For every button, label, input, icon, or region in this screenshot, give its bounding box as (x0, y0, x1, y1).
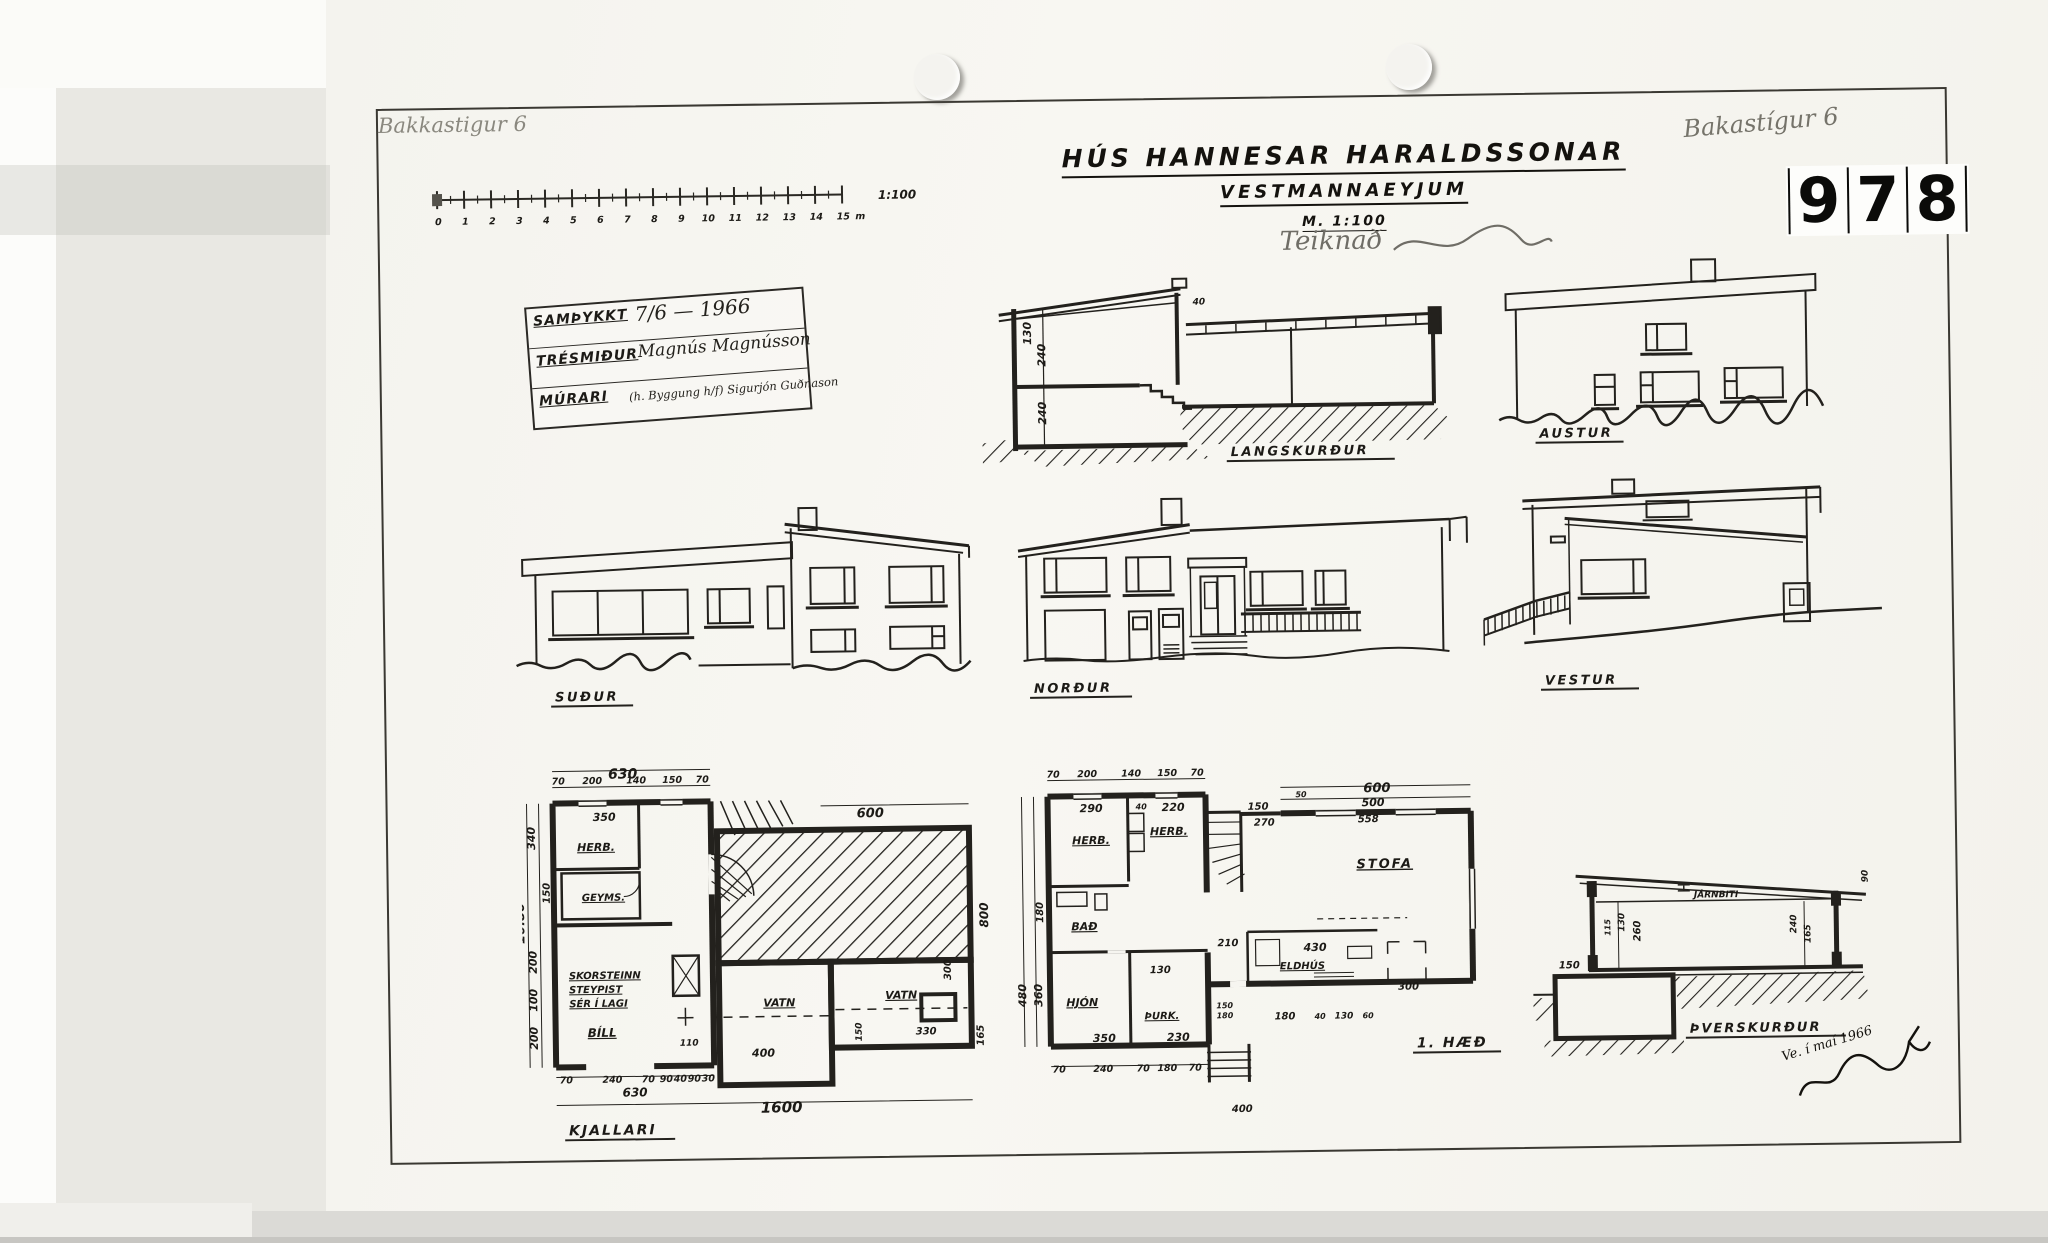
svg-text:480: 480 (1016, 984, 1029, 1008)
room-herb2: HERB. (1150, 825, 1188, 839)
room-stofa: STOFA (1356, 857, 1413, 873)
svg-text:2: 2 (489, 216, 496, 227)
approval-signature: (h. Byggung h/f) Sigurjón Guðnason (629, 374, 839, 404)
scan-corner (0, 0, 326, 88)
svg-text:430: 430 (1302, 941, 1326, 954)
elevation-nordur-drawing: NORÐUR (1011, 483, 1474, 704)
stray-dimension: 400 (1232, 1104, 1253, 1115)
svg-text:40: 40 (673, 1074, 688, 1085)
svg-text:40: 40 (1135, 802, 1148, 811)
scan-bottom-line (0, 1237, 2048, 1243)
svg-text:240: 240 (1035, 343, 1048, 366)
svg-text:500: 500 (1361, 796, 1384, 809)
svg-text:350: 350 (593, 811, 616, 824)
svg-text:165: 165 (976, 1025, 987, 1046)
svg-text:180: 180 (1035, 902, 1046, 923)
svg-text:70: 70 (642, 1074, 656, 1085)
scale-bar: 0 1 2 3 4 5 6 7 8 9 10 11 12 13 14 15 m … (422, 158, 983, 246)
plan-haed1-label: 1. HÆÐ (1417, 1035, 1488, 1052)
approval-label: SAMÞYKKT (533, 307, 629, 330)
beam-label: JÁRNBITI (1692, 888, 1739, 901)
svg-text:150: 150 (542, 883, 553, 904)
approval-label: MÚRARI (539, 389, 609, 410)
svg-text:165: 165 (1803, 924, 1813, 943)
punch-hole-left (914, 54, 960, 100)
elevation-vestur-label: VESTUR (1545, 673, 1618, 689)
note-skorsteinn: SKORSTEINN (569, 970, 642, 982)
svg-text:130: 130 (1617, 913, 1627, 932)
svg-text:70: 70 (552, 776, 566, 787)
svg-text:70: 70 (695, 774, 709, 785)
svg-text:630: 630 (622, 1085, 647, 1099)
svg-text:70: 70 (560, 1075, 574, 1086)
elevation-austur-drawing: AUSTUR (1493, 246, 1836, 446)
title-block: HÚS HANNESAR HARALDSSONAR VESTMANNAEYJUM… (1023, 136, 1664, 236)
svg-text:240: 240 (602, 1075, 622, 1086)
svg-text:300: 300 (1398, 981, 1419, 992)
svg-text:330: 330 (916, 1026, 937, 1037)
svg-text:4: 4 (542, 216, 550, 227)
svg-text:140: 140 (1121, 768, 1141, 779)
svg-text:50: 50 (1295, 790, 1307, 799)
scale-bar-ratio: 1:100 (878, 187, 916, 202)
svg-text:350: 350 (1093, 1032, 1116, 1045)
svg-text:290: 290 (1080, 802, 1103, 815)
stamp-digit: 9 (1788, 167, 1848, 234)
room-eldhus: ELDHÚS (1280, 959, 1325, 973)
scanned-architectural-drawing: { "page": { "archive_number_digits": ["9… (0, 0, 2048, 1243)
svg-text:9: 9 (678, 214, 685, 225)
room-vatn2: VATN (885, 988, 917, 1001)
elevation-austur-label: AUSTUR (1538, 426, 1613, 442)
scale-bar-unit: m (855, 211, 865, 222)
svg-text:240: 240 (1093, 1064, 1113, 1075)
svg-text:240: 240 (1036, 401, 1049, 424)
svg-text:140: 140 (626, 775, 646, 786)
svg-text:180: 180 (1216, 1011, 1233, 1020)
elevation-nordur-label: NORÐUR (1034, 681, 1113, 697)
svg-text:150: 150 (1559, 960, 1580, 971)
svg-text:600: 600 (857, 806, 884, 821)
elevation-sudur-drawing: SUÐUR (506, 496, 979, 713)
svg-text:12: 12 (756, 212, 770, 223)
svg-text:70: 70 (1189, 1063, 1203, 1074)
svg-text:90: 90 (688, 1074, 702, 1085)
svg-text:5: 5 (570, 215, 577, 226)
svg-text:200: 200 (528, 1026, 541, 1049)
svg-text:60: 60 (1362, 1011, 1374, 1020)
room-vatn1: VATN (763, 996, 795, 1009)
scale-bar-tick-labels: 0 1 2 3 4 5 6 7 8 9 10 11 12 13 14 15 m … (435, 187, 917, 228)
svg-text:200: 200 (582, 776, 602, 787)
room-herb: HERB. (577, 841, 615, 855)
stamp-digit: 8 (1906, 166, 1968, 233)
stamp-digit: 7 (1847, 167, 1907, 234)
svg-text:13: 13 (783, 212, 797, 223)
svg-text:11: 11 (729, 213, 742, 224)
svg-text:70: 70 (1190, 767, 1204, 778)
svg-text:7: 7 (624, 214, 631, 225)
plan-kjallari-drawing: 630 70 200 140 150 70 350 340 150 200 10… (520, 755, 1025, 1142)
approval-label: TRÉSMIÐUR (536, 346, 639, 370)
punch-hole-right (1386, 44, 1432, 90)
svg-text:558: 558 (1358, 814, 1379, 825)
svg-text:70: 70 (1046, 769, 1060, 780)
svg-text:210: 210 (1217, 938, 1238, 949)
svg-text:30: 30 (702, 1073, 716, 1084)
svg-text:260: 260 (1632, 920, 1643, 941)
approval-box: SAMÞYKKT 7/6 — 1966 TRÉSMIÐUR Magnús Mag… (524, 287, 812, 431)
svg-text:200: 200 (1077, 769, 1097, 780)
room-geyms: GEYMS. (582, 893, 625, 905)
section-langskurdur-label: LANGSKURÐUR (1231, 443, 1370, 460)
svg-text:400: 400 (751, 1046, 775, 1059)
svg-text:800: 800 (977, 902, 991, 927)
svg-text:300: 300 (943, 959, 954, 980)
svg-text:240: 240 (1789, 914, 1799, 933)
elevation-vestur-drawing: VESTUR (1476, 470, 1889, 696)
svg-text:150: 150 (1157, 768, 1177, 779)
room-bad: BAÐ (1071, 920, 1097, 933)
svg-text:100: 100 (527, 988, 540, 1011)
room-herb1: HERB. (1072, 834, 1110, 848)
drawing-location: VESTMANNAEYJUM (1220, 179, 1468, 207)
svg-text:STEYPIST: STEYPIST (569, 985, 623, 997)
svg-text:1600: 1600 (761, 1098, 803, 1117)
svg-text:70: 70 (1053, 1064, 1067, 1075)
svg-text:15: 15 (837, 211, 851, 222)
archive-number-stamp: 9 7 8 (1786, 164, 1970, 237)
svg-text:150: 150 (1216, 1001, 1233, 1010)
svg-text:10: 10 (702, 213, 716, 224)
svg-text:180: 180 (1274, 1011, 1295, 1022)
section-thverskurdur-texts: JÁRNBITI 115 130 260 240 165 150 90 ÞVER… (1558, 870, 1873, 1039)
svg-text:8: 8 (651, 214, 658, 225)
section-langskurdur-drawing: 130 240 240 40 LANGSKURÐUR (980, 269, 1473, 471)
svg-text:150: 150 (662, 775, 682, 786)
svg-text:90: 90 (660, 1074, 674, 1085)
scan-streak (0, 165, 330, 235)
approval-value: 7/6 — 1966 (634, 294, 751, 327)
svg-text:3: 3 (516, 216, 523, 227)
plan-haed1-drawing: 70 200 140 150 70 290 40 220 150 270 50 … (1015, 748, 1520, 1105)
svg-text:110: 110 (680, 1039, 699, 1049)
svg-text:220: 220 (1162, 801, 1185, 814)
drawing-content: Bakkastigur 6 0 1 2 3 4 5 6 7 8 9 10 11 … (332, 44, 1998, 1197)
svg-text:360: 360 (1032, 983, 1045, 1006)
svg-text:40: 40 (1313, 1012, 1326, 1021)
svg-text:0: 0 (435, 217, 442, 228)
svg-text:90: 90 (1861, 870, 1871, 883)
svg-text:SÉR Í LAGI: SÉR Í LAGI (569, 997, 628, 1011)
svg-text:200: 200 (527, 950, 540, 973)
svg-text:270: 270 (1254, 817, 1275, 828)
svg-text:150: 150 (1248, 802, 1269, 813)
svg-text:130: 130 (1021, 321, 1034, 344)
svg-text:6: 6 (597, 215, 604, 226)
section-thverskurdur-label: ÞVERSKURÐUR (1690, 1020, 1822, 1037)
svg-text:600: 600 (1363, 781, 1390, 796)
svg-text:115: 115 (1603, 919, 1612, 936)
svg-text:150: 150 (855, 1022, 865, 1041)
svg-text:40: 40 (1192, 297, 1206, 307)
svg-text:1: 1 (462, 217, 469, 228)
svg-text:70: 70 (1137, 1063, 1151, 1074)
room-hjon: HJÓN (1066, 996, 1098, 1009)
svg-text:130: 130 (1150, 965, 1171, 976)
room-thurk: ÞURK. (1144, 1011, 1179, 1022)
svg-text:130: 130 (1334, 1011, 1353, 1021)
pencil-note-street: Bakkastigur 6 (378, 112, 527, 138)
room-bill: BÍLL (588, 1025, 617, 1040)
svg-text:340: 340 (525, 826, 538, 849)
svg-text:14: 14 (810, 212, 824, 223)
svg-text:230: 230 (1167, 1031, 1190, 1044)
plan-kjallari-label: KJALLARI (569, 1122, 657, 1139)
elevation-sudur-label: SUÐUR (555, 690, 619, 706)
svg-text:180: 180 (1157, 1063, 1177, 1074)
